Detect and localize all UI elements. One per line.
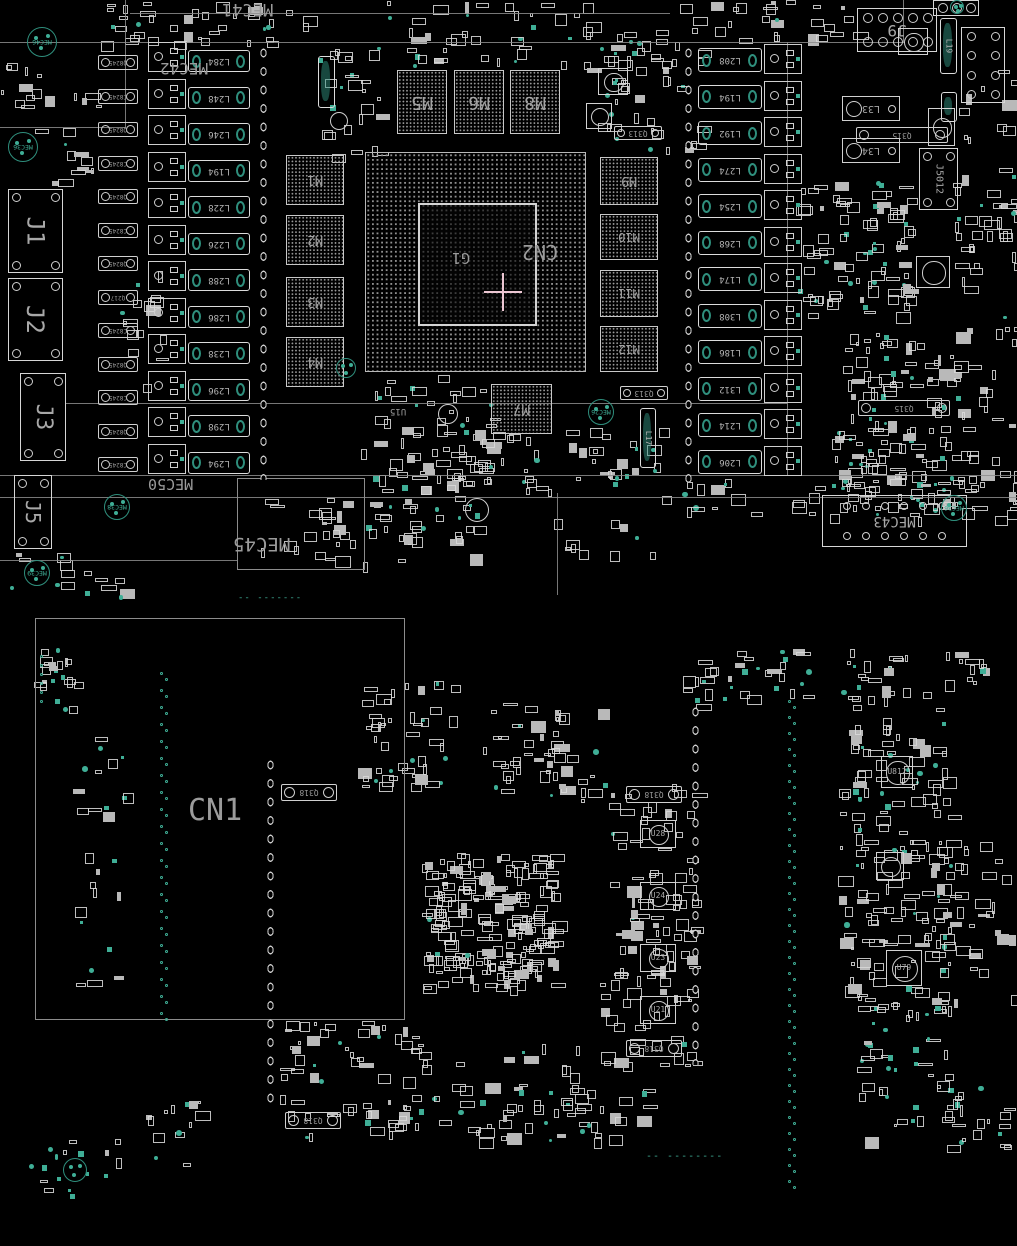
- cluster-part: [845, 907, 853, 917]
- cluster-part: [650, 552, 656, 560]
- via-dot: [160, 672, 163, 675]
- driver-teal-pad: [796, 276, 800, 280]
- cluster-part: [451, 932, 456, 941]
- cluster-part: [481, 55, 490, 62]
- connector-pad: [991, 71, 1000, 80]
- fet-driver-block: [148, 115, 186, 145]
- cluster-part: [856, 252, 868, 261]
- memory-label: M4: [287, 338, 343, 386]
- cluster-part: [888, 880, 903, 888]
- cluster-part: [711, 2, 724, 12]
- cluster-part: [848, 380, 852, 391]
- fet-driver-block: [764, 154, 802, 184]
- cluster-part: [426, 909, 436, 919]
- driver-teal-pad: [180, 347, 184, 351]
- cluster-part: [630, 918, 640, 922]
- cluster-part-teal-pad: [911, 1119, 915, 1123]
- cluster-part: [480, 389, 487, 393]
- cluster-part: [338, 52, 353, 63]
- cluster-part: [460, 1101, 475, 1108]
- connector-pad: [967, 32, 976, 41]
- cluster-part: [595, 1133, 602, 1137]
- via-dot: [793, 1122, 796, 1125]
- cluster-part: [534, 1100, 540, 1112]
- driver-pin: [786, 99, 794, 105]
- driver-pad: [770, 310, 779, 319]
- cluster-part-teal-pad: [956, 396, 961, 401]
- cluster-part: [882, 686, 891, 697]
- inductor-l246: L246: [188, 123, 250, 145]
- driver-teal-pad: [180, 274, 184, 278]
- cluster-part: [907, 198, 918, 206]
- cluster-part: [1014, 263, 1017, 271]
- cluster-part: [418, 686, 425, 695]
- connector-j5012: J5012: [919, 148, 958, 210]
- fiducial-mec36: MEC36: [8, 132, 38, 162]
- via-dot: [165, 729, 168, 732]
- cluster-part: [440, 743, 444, 753]
- cluster-part-teal-pad: [756, 667, 759, 670]
- cluster-part: [96, 105, 102, 108]
- cluster-part: [954, 378, 961, 382]
- cluster-part: [371, 1026, 380, 1035]
- driver-pin: [170, 170, 178, 176]
- cluster-part: [363, 1103, 372, 1109]
- capacitor-c8245: C8245: [98, 323, 138, 338]
- inductor-l186: L186: [698, 340, 762, 364]
- cluster-part-teal-pad: [935, 1006, 941, 1012]
- via-dot: [793, 706, 796, 709]
- cluster-part: [412, 18, 426, 25]
- cluster-part-teal-pad: [377, 1035, 381, 1039]
- driver-teal-pad: [180, 165, 184, 169]
- cluster-part: [491, 710, 496, 715]
- cluster-part-teal-pad: [872, 1022, 875, 1025]
- driver-pin: [786, 208, 794, 214]
- cluster-part: [852, 813, 864, 821]
- cluster-part-teal-pad: [824, 260, 828, 264]
- cluster-part: [979, 659, 985, 669]
- cluster-part: [412, 476, 427, 480]
- connector-pad: [40, 479, 49, 488]
- cluster-part: [987, 1119, 991, 1125]
- cluster-part: [521, 952, 527, 958]
- cluster-part: [911, 987, 923, 994]
- cluster-part: [687, 482, 693, 489]
- cluster-part: [370, 1127, 384, 1136]
- cluster-part: [959, 108, 970, 116]
- cluster-part: [942, 751, 946, 757]
- cluster-part: [971, 485, 980, 492]
- inductor-vertical: [318, 56, 335, 108]
- cluster-part: [483, 747, 487, 756]
- cluster-part: [929, 428, 934, 434]
- cluster-part: [101, 585, 117, 591]
- cluster-part: [905, 362, 917, 365]
- cluster-part: [482, 439, 495, 448]
- driver-pin: [170, 462, 178, 468]
- cluster-part: [992, 418, 1004, 421]
- cluster-part-teal-pad: [742, 669, 748, 675]
- cluster-part: [442, 894, 456, 902]
- via-dot: [165, 848, 168, 851]
- cluster-part: [324, 132, 336, 140]
- cluster-part: [921, 484, 931, 487]
- inductor-label: L246: [189, 124, 249, 144]
- cluster-part: [865, 1137, 879, 1149]
- cluster-part: [63, 1150, 67, 1155]
- cluster-part: [945, 680, 955, 692]
- via-dot: [793, 1106, 796, 1109]
- cluster-part: [619, 1097, 632, 1106]
- dash-marks: -- -------: [238, 594, 302, 603]
- cluster-part: [903, 434, 916, 441]
- inductor-label: L312: [699, 378, 761, 400]
- inductor-label: L308: [699, 305, 761, 327]
- cluster-part: [479, 1138, 493, 1149]
- cluster-part: [399, 1116, 407, 1121]
- driver-pin: [170, 450, 178, 456]
- cluster-part: [436, 956, 442, 966]
- driver-pin: [170, 158, 178, 164]
- cluster-part: [86, 170, 93, 173]
- cluster-part: [390, 459, 403, 471]
- cluster-part: [964, 849, 969, 856]
- cluster-part-teal-pad: [934, 483, 937, 486]
- cluster-part-teal-pad: [388, 16, 392, 20]
- fiducial-label: MEC36: [942, 496, 966, 520]
- cluster-part: [522, 959, 533, 966]
- cluster-part: [680, 4, 693, 14]
- cluster-part: [940, 968, 948, 977]
- cluster-part: [461, 930, 474, 936]
- cluster-part: [873, 978, 887, 987]
- via-dot: [165, 984, 168, 987]
- cluster-part: [864, 840, 879, 844]
- cluster-part: [581, 799, 585, 803]
- fiducial-dot: [72, 1173, 76, 1177]
- cluster-part: [566, 540, 581, 550]
- inductor-pad: [321, 61, 330, 101]
- cluster-part: [928, 1074, 935, 1077]
- via-dot: [160, 706, 163, 709]
- cluster-part: [918, 1063, 933, 1067]
- cluster-part: [600, 983, 605, 987]
- cluster-part: [803, 695, 814, 698]
- cluster-part: [361, 104, 374, 116]
- cluster-part: [1012, 339, 1017, 348]
- cluster-part: [864, 1041, 872, 1045]
- cluster-part: [501, 789, 515, 794]
- cluster-part: [675, 873, 688, 883]
- cluster-part: [850, 334, 858, 346]
- driver-pad: [154, 308, 163, 317]
- cluster-part: [852, 379, 864, 384]
- capacitor-c8245: C8245: [98, 223, 138, 238]
- cluster-part: [440, 859, 445, 864]
- cluster-part: [519, 1084, 528, 1087]
- cluster-part: [536, 486, 548, 491]
- cluster-part: [932, 998, 942, 1005]
- via-dot: [793, 1074, 796, 1077]
- cluster-part: [1004, 1108, 1016, 1112]
- cluster-part: [851, 962, 855, 966]
- cluster-part: [883, 725, 891, 735]
- cluster-part: [740, 691, 749, 700]
- cluster-part: [957, 907, 963, 918]
- cluster-part: [942, 1117, 955, 1123]
- cluster-part: [552, 891, 555, 901]
- cluster-part-teal-pad: [635, 536, 639, 540]
- capacitor-q8245: Q8245: [98, 55, 138, 70]
- cluster-part: [851, 947, 854, 950]
- text-label-mec41: MEC41: [222, 0, 273, 17]
- cluster-part: [482, 970, 487, 975]
- via-dot: [160, 893, 163, 896]
- cluster-part: [456, 1062, 466, 1067]
- cluster-part: [501, 854, 510, 861]
- cluster-part-teal-pad: [873, 247, 877, 251]
- inductor-l274: L274: [698, 158, 762, 182]
- fiducial-dot: [954, 5, 958, 9]
- cluster-part: [871, 271, 885, 280]
- via-dot: [793, 770, 796, 773]
- cluster-part: [804, 267, 815, 274]
- coil-l34: L34: [842, 138, 900, 163]
- inductor-label: L17: [619, 431, 677, 445]
- cluster-part: [445, 941, 457, 950]
- inductor-label: L228: [189, 197, 249, 217]
- cluster-part: [844, 933, 858, 938]
- cluster-part: [412, 387, 428, 396]
- cluster-part: [189, 1122, 192, 1128]
- cluster-part-teal-pad: [465, 953, 469, 957]
- cluster-part: [415, 775, 429, 786]
- cluster-part: [195, 1111, 210, 1121]
- via-dot: [160, 825, 163, 828]
- cluster-part: [938, 482, 951, 485]
- via-circle: [465, 498, 489, 522]
- cluster-part: [362, 89, 366, 93]
- cluster-part: [448, 900, 459, 912]
- cluster-part: [513, 757, 521, 768]
- cluster-part-teal-pad: [136, 22, 141, 27]
- driver-pad: [770, 127, 779, 136]
- cluster-part: [932, 926, 936, 932]
- driver-pin: [786, 233, 794, 239]
- via-dot: [788, 828, 791, 831]
- cluster-part: [379, 475, 386, 487]
- silk-line: [65, 403, 787, 404]
- cluster-part: [977, 1119, 985, 1129]
- cluster-part: [462, 31, 468, 39]
- cluster-part: [281, 1074, 288, 1080]
- cluster-part: [737, 651, 747, 657]
- cluster-part: [487, 477, 492, 483]
- inductor-l174: L174: [698, 267, 762, 291]
- via-dot: [160, 757, 163, 760]
- cluster-part: [1004, 1145, 1012, 1151]
- cluster-part: [880, 811, 888, 814]
- fiducial-dot: [344, 371, 348, 375]
- cluster-part: [611, 793, 614, 798]
- cluster-part: [814, 250, 828, 256]
- cluster-part: [808, 188, 819, 194]
- cluster-part-teal-pad: [859, 463, 863, 467]
- cluster-part-teal-pad: [176, 1130, 182, 1136]
- cluster-part: [107, 8, 114, 12]
- cluster-part: [405, 535, 413, 544]
- cluster-part: [531, 721, 546, 733]
- fiducial-mec26: MEC26: [588, 399, 614, 425]
- via-dot: [788, 1052, 791, 1055]
- cluster-part: [432, 449, 437, 457]
- cluster-part: [904, 894, 920, 900]
- cluster-part: [811, 19, 824, 27]
- via-dot: [40, 691, 43, 694]
- cluster-part: [309, 1133, 313, 1142]
- cluster-part-teal-pad: [415, 404, 418, 407]
- cluster-part-teal-pad: [64, 143, 67, 146]
- driver-pad: [770, 383, 779, 392]
- cluster-part-teal-pad: [120, 311, 125, 316]
- cluster-part: [1003, 231, 1008, 241]
- cluster-part: [728, 676, 732, 682]
- cluster-part: [387, 1, 391, 6]
- driver-pin: [170, 206, 178, 212]
- chip-circle-mark: [604, 73, 623, 92]
- cluster-part: [890, 443, 903, 453]
- cluster-part: [839, 789, 850, 797]
- driver-teal-pad: [796, 459, 800, 463]
- fiducial-dot: [956, 9, 960, 13]
- cluster-part: [483, 872, 491, 882]
- cluster-part-teal-pad: [421, 526, 426, 531]
- driver-pin: [786, 306, 794, 312]
- cluster-part: [711, 485, 725, 495]
- driver-pin: [170, 121, 178, 127]
- cluster-part: [868, 696, 874, 705]
- cap-label: Q318: [627, 787, 681, 802]
- driver-pin: [170, 243, 178, 249]
- cluster-part: [965, 216, 978, 225]
- cluster-part: [637, 976, 642, 987]
- via-dot: [165, 678, 168, 681]
- cluster-part: [548, 489, 551, 497]
- cluster-part: [926, 461, 938, 468]
- cluster-part-teal-pad: [937, 895, 940, 898]
- cluster-part: [963, 427, 976, 432]
- cluster-part: [1007, 510, 1017, 520]
- fet-driver-block: [148, 407, 186, 437]
- cluster-part: [840, 846, 843, 850]
- cluster-part: [613, 832, 628, 840]
- via-dot: [40, 682, 43, 685]
- via-dot: [788, 844, 791, 847]
- cluster-part-teal-pad: [642, 1091, 647, 1096]
- cluster-part: [590, 775, 596, 778]
- driver-pin: [786, 427, 794, 433]
- driver-pin: [786, 342, 794, 348]
- cluster-part: [833, 195, 840, 204]
- cap-label: Q315: [859, 401, 949, 415]
- via-dot: [793, 1058, 796, 1061]
- cluster-part: [968, 365, 982, 370]
- cluster-part-teal-pad: [603, 783, 608, 788]
- cluster-part-teal-pad: [891, 371, 897, 377]
- cluster-part: [980, 842, 993, 852]
- cluster-part: [421, 486, 431, 496]
- cluster-part: [809, 512, 815, 515]
- gpu-die-label: G1: [452, 250, 470, 265]
- cluster-part-teal-pad: [894, 1068, 898, 1072]
- cluster-part: [602, 434, 611, 440]
- via-dot: [793, 882, 796, 885]
- cap-label: Q8245: [99, 123, 137, 136]
- cluster-part-teal-pad: [263, 27, 267, 31]
- via-dot: [165, 695, 168, 698]
- cluster-part: [850, 649, 855, 658]
- via-dot: [788, 1180, 791, 1183]
- cluster-part: [926, 842, 929, 852]
- memory-label: M7: [492, 385, 551, 433]
- cluster-part-teal-pad: [402, 485, 408, 491]
- driver-teal-pad: [796, 240, 800, 244]
- cluster-part: [923, 692, 932, 700]
- cluster-part: [995, 859, 1002, 864]
- cluster-part: [418, 1044, 425, 1047]
- via-dot: [788, 940, 791, 943]
- memory-chip-m3: M3: [286, 277, 344, 327]
- cluster-part-teal-pad: [998, 1132, 1002, 1136]
- driver-pin: [170, 352, 178, 358]
- cluster-part: [517, 49, 528, 59]
- cluster-part: [950, 355, 954, 359]
- driver-pad: [154, 454, 163, 463]
- cluster-part: [415, 1123, 419, 1132]
- cluster-part-teal-pad: [10, 586, 14, 590]
- cluster-part: [425, 862, 432, 870]
- cluster-part: [715, 27, 726, 36]
- cluster-part: [351, 150, 364, 155]
- cluster-part-teal-pad: [635, 447, 638, 450]
- via-dot: [793, 1170, 796, 1173]
- cluster-part: [899, 262, 912, 268]
- chip-u24: U24: [640, 882, 676, 910]
- driver-pad: [770, 419, 779, 428]
- cluster-part: [954, 365, 963, 370]
- cluster-part: [928, 377, 932, 382]
- fet-driver-block: [764, 81, 802, 111]
- cluster-part: [857, 1067, 873, 1073]
- connector-pad: [967, 51, 976, 60]
- connector-label: J3: [0, 395, 86, 439]
- via-dot: [793, 898, 796, 901]
- connector-pad: [12, 349, 21, 358]
- fiducial-mec39: MEC39: [24, 560, 50, 586]
- cluster-part: [859, 1093, 865, 1102]
- pad-strip: [263, 756, 278, 1106]
- cluster-part: [1, 90, 4, 95]
- cluster-part: [962, 1138, 966, 1142]
- cluster-part: [710, 667, 720, 676]
- driver-pin: [170, 97, 178, 103]
- via-dot: [160, 961, 163, 964]
- cluster-part: [647, 118, 655, 126]
- cluster-part-teal-pad: [266, 25, 270, 29]
- cluster-part: [920, 745, 931, 757]
- cluster-part: [620, 524, 628, 533]
